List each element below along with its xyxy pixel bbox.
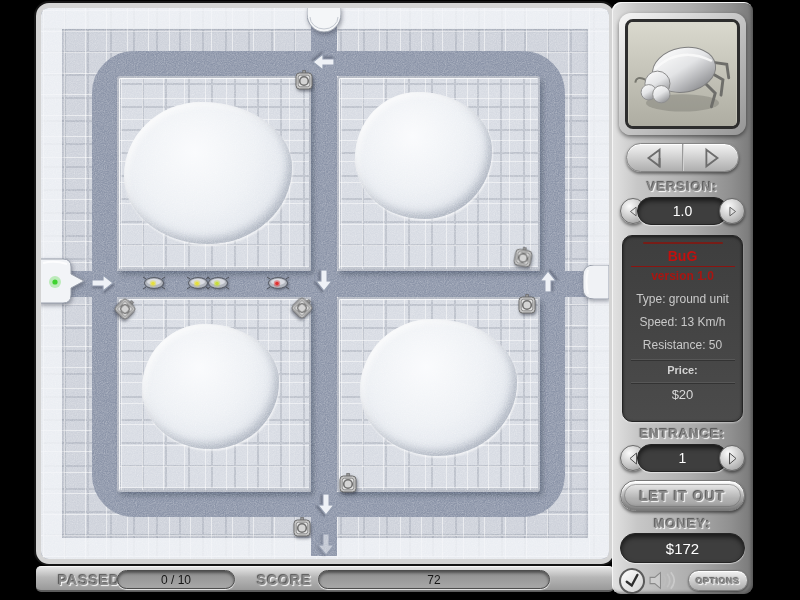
unit-type: Type: ground unit	[623, 292, 742, 306]
panel-bottom-row: OPTIONS	[619, 567, 748, 594]
check-icon	[623, 571, 641, 589]
status-bar: PASSED 0 / 10 SCORE 72	[36, 566, 614, 592]
unit-resistance: Resistance: 50	[623, 338, 742, 352]
entrance-label: ENTRANCE:	[612, 426, 753, 441]
info-micro-header	[643, 242, 723, 244]
entrance-selector: 1	[620, 443, 745, 473]
version-value: 1.0	[673, 203, 692, 219]
tower[interactable]	[293, 70, 315, 92]
passed-value: 0 / 10	[161, 573, 191, 587]
tower[interactable]	[337, 473, 359, 495]
tower[interactable]	[516, 294, 538, 316]
control-panel: VERSION: 1.0 BuG version 1.0 Type: groun…	[612, 2, 753, 594]
unit-speed: Speed: 13 Km/h	[623, 315, 742, 329]
divider	[631, 359, 735, 360]
exit-right	[583, 265, 609, 299]
unit-preview-frame	[619, 13, 746, 135]
tower[interactable]	[510, 245, 535, 270]
confirm-toggle[interactable]	[617, 566, 646, 595]
sound-toggle[interactable]	[648, 570, 676, 592]
bug-enemy	[142, 276, 166, 290]
passed-display: 0 / 10	[117, 570, 235, 589]
version-up-button[interactable]	[719, 198, 745, 224]
beetle-icon	[628, 22, 737, 126]
score-value: 72	[427, 573, 440, 587]
direction-arrow-up	[535, 269, 561, 295]
tower[interactable]	[286, 292, 317, 323]
direction-arrow-right	[89, 270, 115, 296]
direction-arrow-down	[313, 531, 339, 557]
unit-info-panel: BuG version 1.0 Type: ground unit Speed:…	[622, 235, 743, 422]
bug-enemy	[206, 276, 230, 290]
next-arrow-icon	[696, 146, 726, 170]
bug-enemy	[266, 276, 290, 290]
options-button[interactable]: OPTIONS	[688, 570, 748, 591]
version-value-display: 1.0	[637, 197, 728, 225]
tower[interactable]	[109, 293, 140, 324]
right-triangle-icon	[726, 451, 739, 466]
unit-nav	[626, 143, 739, 172]
score-display: 72	[318, 570, 550, 589]
money-value: $172	[666, 540, 699, 557]
version-label: VERSION:	[612, 179, 753, 194]
right-triangle-icon	[727, 205, 738, 218]
unit-name: BuG	[623, 248, 742, 264]
game-board-panel	[36, 3, 614, 564]
unit-preview-image	[625, 19, 740, 129]
next-unit-button[interactable]	[684, 144, 739, 171]
entrance-left	[41, 257, 85, 305]
entrance-next-button[interactable]	[719, 445, 745, 471]
entrance-value-display: 1	[637, 444, 728, 472]
money-display: $172	[620, 533, 745, 563]
entrance-value: 1	[679, 450, 687, 466]
passed-label: PASSED	[58, 572, 121, 588]
version-selector: 1.0	[620, 196, 745, 226]
sprite-layer	[41, 8, 609, 559]
unit-version-text: version 1.0	[623, 269, 742, 283]
price-value: $20	[623, 387, 742, 402]
direction-arrow-down	[311, 267, 337, 293]
game-screen: PASSED 0 / 10 SCORE 72	[0, 0, 800, 600]
divider	[631, 382, 735, 383]
let-it-out-button[interactable]: LET IT OUT	[620, 480, 745, 511]
portal-top	[307, 8, 341, 33]
red-divider	[631, 266, 735, 267]
prev-unit-button[interactable]	[627, 144, 682, 171]
score-label: SCORE	[257, 572, 312, 588]
game-field[interactable]	[41, 8, 609, 559]
tower[interactable]	[291, 517, 313, 539]
direction-arrow-down	[313, 491, 339, 517]
prev-arrow-icon	[639, 146, 669, 170]
speaker-icon	[648, 570, 675, 591]
price-label: Price:	[623, 364, 742, 376]
money-label: MONEY:	[612, 516, 753, 531]
